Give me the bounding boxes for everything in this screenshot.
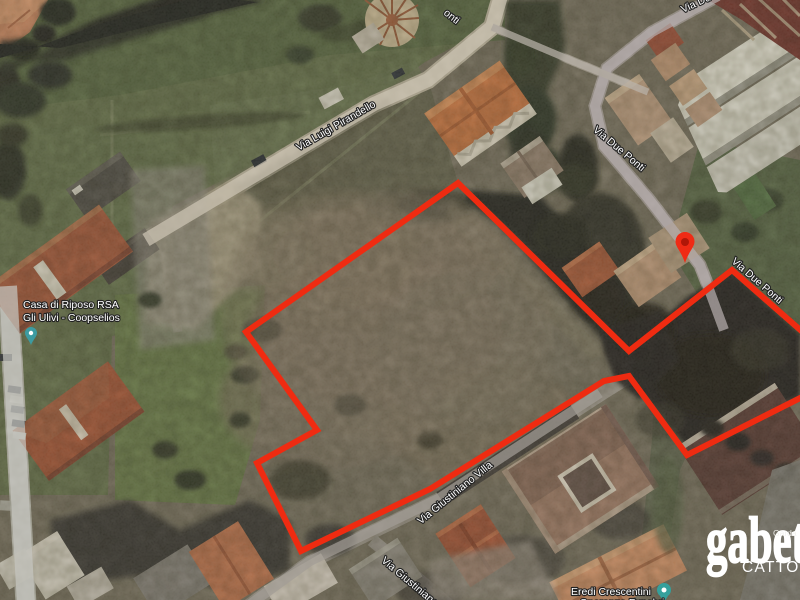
svg-text:Casa di Riposo RSA: Casa di Riposo RSA (23, 299, 119, 311)
svg-text:Gli Ulivi - Coopselios: Gli Ulivi - Coopselios (23, 312, 120, 324)
svg-text:CATTOLICA: CATTOLICA (742, 559, 800, 576)
svg-text:Garda: Garda (773, 528, 797, 538)
